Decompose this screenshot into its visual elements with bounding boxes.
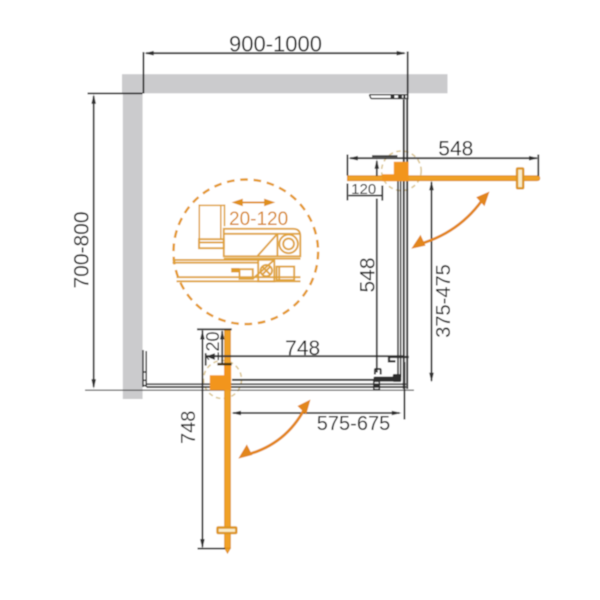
svg-text:748: 748	[178, 411, 200, 444]
svg-text:548: 548	[438, 137, 473, 160]
svg-text:375-475: 375-475	[433, 264, 455, 337]
svg-text:120: 120	[351, 181, 376, 198]
svg-text:900-1000: 900-1000	[229, 31, 322, 56]
svg-text:548: 548	[357, 257, 380, 292]
svg-text:20-120: 20-120	[229, 209, 288, 230]
svg-text:575-675: 575-675	[317, 413, 390, 435]
svg-text:700-800: 700-800	[70, 211, 93, 288]
svg-text:748: 748	[285, 337, 320, 360]
